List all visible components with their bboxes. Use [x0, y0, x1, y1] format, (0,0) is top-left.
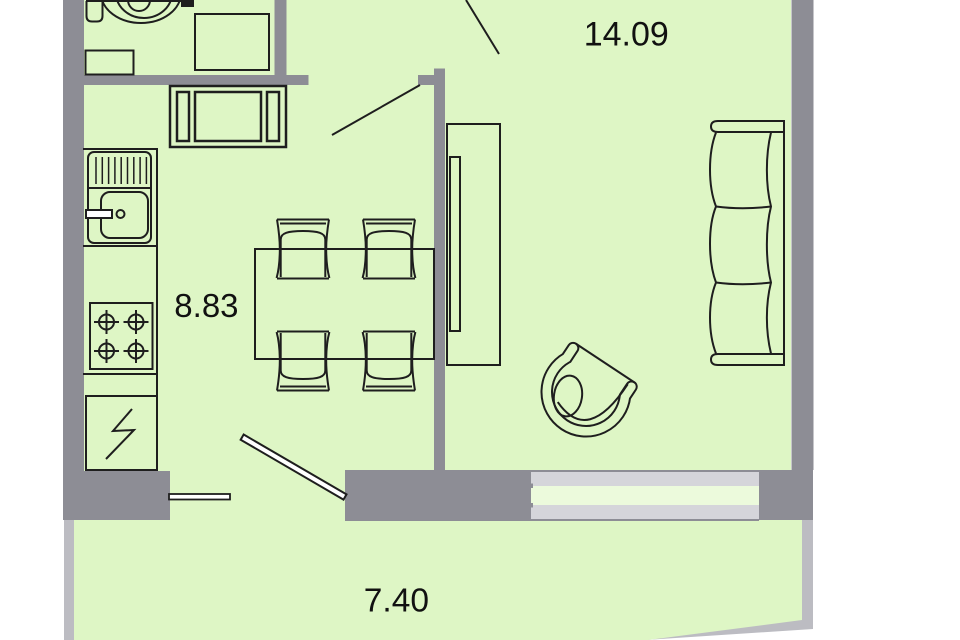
svg-text:14.09: 14.09 — [584, 16, 669, 54]
svg-text:8.83: 8.83 — [174, 287, 238, 324]
svg-text:7.40: 7.40 — [364, 583, 429, 620]
